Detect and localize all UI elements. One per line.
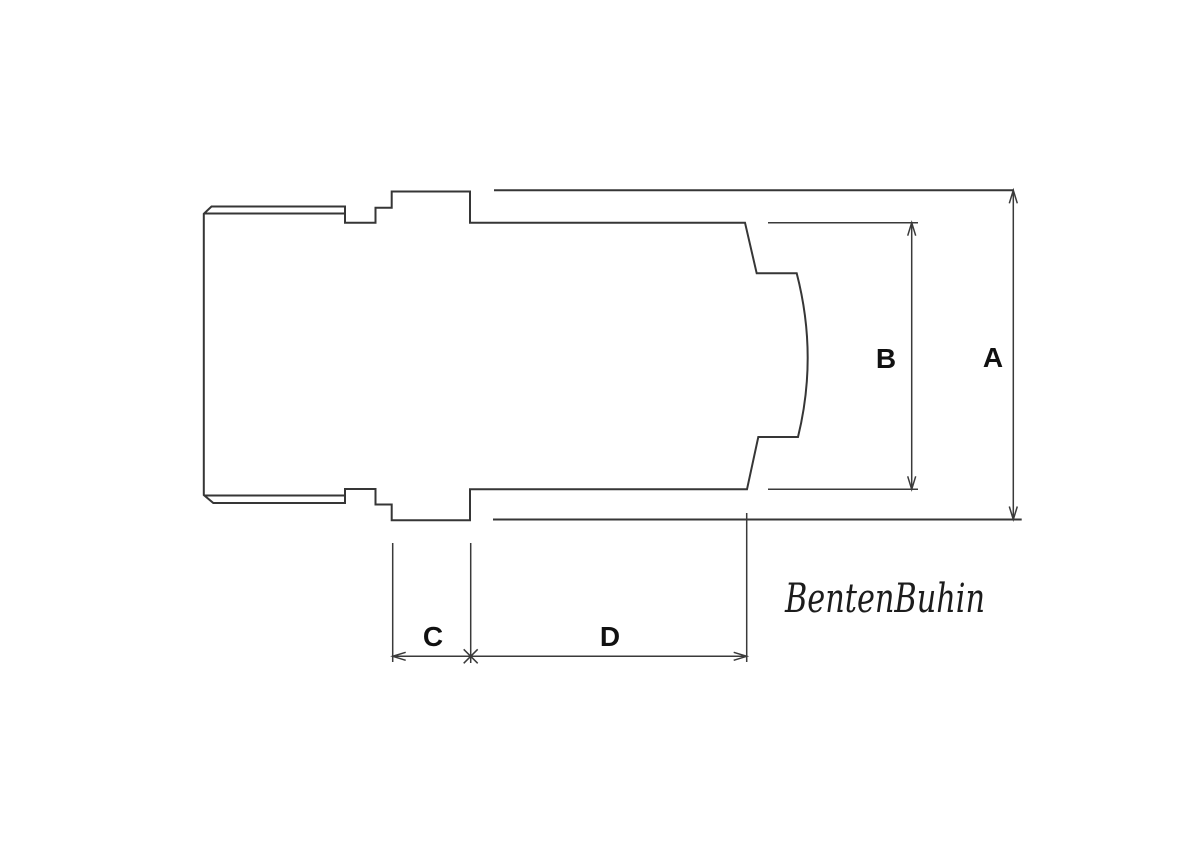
dimension-a: A	[983, 190, 1017, 519]
dimension-d-label: D	[600, 621, 620, 652]
signature-logo-text: BentenBuhin	[784, 576, 985, 622]
part-outline	[204, 190, 1022, 520]
dimension-c: C	[393, 543, 747, 663]
dimension-b-label: B	[876, 343, 896, 374]
part-profile-path	[204, 192, 808, 521]
dimension-c-label: C	[423, 621, 443, 652]
drawing-canvas: A B C D BentenBuhin	[0, 0, 1200, 848]
dimension-d: D	[600, 513, 747, 662]
dimension-b: B	[768, 223, 918, 490]
technical-drawing: A B C D BentenBuhin	[0, 0, 1200, 848]
dimension-a-label: A	[983, 342, 1003, 373]
